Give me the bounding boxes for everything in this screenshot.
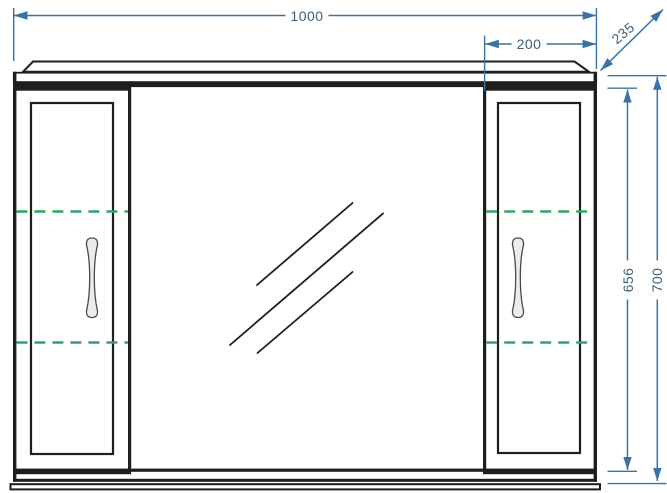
dim-section-width-label: 200 [512, 36, 547, 52]
right-divider-wall [483, 87, 486, 470]
right-outer-wall [594, 72, 597, 482]
dim-total-width-label: 1000 [285, 8, 328, 24]
left-top-rail [13, 83, 131, 91]
left-bottom-rail [13, 469, 131, 475]
center-bottom-rail [128, 469, 486, 472]
dim-arrowhead-up-icon [623, 90, 631, 103]
cabinet-cornice [23, 62, 589, 72]
left-divider-wall [128, 87, 131, 470]
right-top-rail [483, 83, 597, 91]
cabinet-structure [11, 62, 601, 490]
right-bottom-rail [483, 469, 597, 475]
door-handles [86, 238, 523, 318]
dim-arrowhead-right-icon [583, 11, 597, 19]
left-outer-wall [13, 72, 16, 482]
center-top-rail [128, 83, 486, 88]
technical-drawing-canvas [0, 0, 667, 493]
right-door-panel [498, 103, 580, 453]
dim-arrowhead-left-icon [485, 40, 499, 48]
mirror-hatch-line [230, 214, 383, 346]
mirror-cabinet-technical-drawing: 1000 200 235 656 700 [0, 0, 667, 493]
dim-arrowhead-down-icon [653, 468, 661, 481]
dim-arrowhead-up-icon [653, 77, 661, 90]
dim-arrowhead-down-icon [623, 457, 631, 470]
mirror-hatch-lines [230, 203, 383, 353]
dim-arrowhead-left-icon [14, 11, 28, 19]
cabinet-top-frame [14, 73, 596, 82]
mirror-hatch-line [257, 203, 353, 285]
dim-arrowhead-right-icon [583, 40, 597, 48]
mirror-hatch-line [258, 272, 353, 353]
dim-inner-height-label: 656 [620, 261, 636, 300]
cabinet-base-plinth [11, 484, 601, 489]
dim-total-height-label: 700 [649, 261, 665, 300]
cabinet-bottom-edge [13, 479, 597, 482]
left-door-panel [31, 103, 113, 454]
